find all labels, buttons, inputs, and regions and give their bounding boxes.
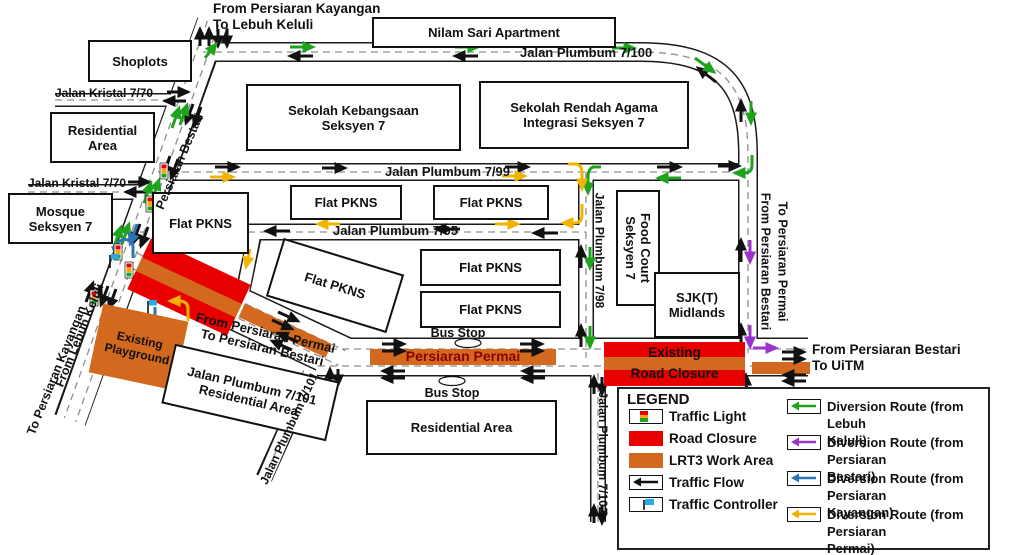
label-jalan-plumbum-7-95: Jalan Plumbum 7/95: [333, 223, 473, 238]
label-jalan-plumbum-7-102: Jalan Plumbum 7/102: [595, 385, 610, 520]
legend-item-lrt3-work-area: LRT3 Work Area: [629, 453, 773, 468]
building-residential-area-nw: Residential Area: [50, 112, 155, 163]
label-bus-stop-2: Bus Stop: [412, 386, 492, 401]
label-persiaran-permai: Persiaran Permai: [370, 348, 556, 365]
building-sekolah-kebangsaan: Sekolah Kebangsaan Seksyen 7: [246, 84, 461, 151]
traffic-diversion-map: Shoplots Nilam Sari Apartment Residentia…: [0, 0, 1024, 555]
legend-item-label: Traffic Light: [669, 409, 746, 424]
building-nilam-sari-apartment: Nilam Sari Apartment: [372, 17, 616, 48]
traffic-flow-icon: [629, 475, 663, 490]
label-to-persiaran-permai-vertical: To Persiaran Permai: [775, 187, 790, 337]
legend-title: LEGEND: [627, 391, 690, 408]
existing-road-closure: Existing Road Closure: [604, 342, 745, 386]
legend-panel: LEGEND Traffic Light Road Closure LRT3 W…: [617, 387, 990, 550]
diversion-yellow-arrow-icon: [787, 507, 821, 522]
diversion-blue-arrow-icon: [787, 471, 821, 486]
existing-road-closure-label: Existing Road Closure: [604, 342, 745, 384]
legend-item-label: LRT3 Work Area: [669, 453, 773, 468]
label-jalan-kristal-7-70-a: Jalan Kristal 7/70: [55, 86, 165, 101]
diversion-purple-arrow-icon: [787, 435, 821, 450]
building-mosque: Mosque Seksyen 7: [8, 193, 113, 244]
label-jalan-kristal-7-70-b: Jalan Kristal 7/70: [28, 176, 138, 191]
label-jalan-plumbum-7-98: Jalan Plumbum 7/98: [592, 186, 607, 316]
label-from-persiaran-bestari-vertical: From Persiaran Bestari: [758, 187, 773, 337]
road-closure-swatch: [629, 431, 663, 446]
legend-item-traffic-light: Traffic Light: [629, 409, 746, 424]
legend-item-traffic-controller: Traffic Controller: [629, 497, 778, 512]
diversion-green-arrow-icon: [787, 399, 821, 414]
traffic-controller-icon: [629, 497, 663, 512]
label-bus-stop-1: Bus Stop: [418, 326, 498, 341]
label-from-bestari-to-uitm: From Persiaran Bestari To UiTM: [812, 342, 992, 374]
legend-item-traffic-flow: Traffic Flow: [629, 475, 744, 490]
label-jalan-plumbum-7-99: Jalan Plumbum 7/99: [385, 164, 525, 179]
label-jalan-plumbum-7-100: Jalan Plumbum 7/100: [520, 45, 660, 60]
legend-route-persiaran-permai: Diversion Route (from Persiaran Permai): [787, 506, 988, 555]
label-from-kayangan-to-keluli: From Persiaran Kayangan To Lebuh Keluli: [213, 1, 393, 33]
legend-item-label: Traffic Flow: [669, 475, 744, 490]
building-sekolah-rendah-agama: Sekolah Rendah Agama Integrasi Seksyen 7: [479, 81, 689, 149]
traffic-light-icon: [629, 409, 663, 424]
building-shoplots: Shoplots: [88, 40, 192, 82]
building-flat-pkns-6: Flat PKNS: [420, 291, 561, 328]
building-flat-pkns-1: Flat PKNS: [290, 185, 402, 220]
legend-route-label: Diversion Route (from Persiaran Permai): [827, 506, 988, 555]
legend-item-label: Traffic Controller: [669, 497, 778, 512]
building-flat-pkns-2: Flat PKNS: [433, 185, 549, 220]
building-sjkt-midlands: SJK(T) Midlands: [654, 272, 740, 338]
legend-item-road-closure: Road Closure: [629, 431, 757, 446]
building-flat-pkns-5: Flat PKNS: [420, 249, 561, 286]
building-residential-area-s: Residential Area: [366, 400, 557, 455]
lrt3-work-area-swatch: [629, 453, 663, 468]
legend-item-label: Road Closure: [669, 431, 757, 446]
